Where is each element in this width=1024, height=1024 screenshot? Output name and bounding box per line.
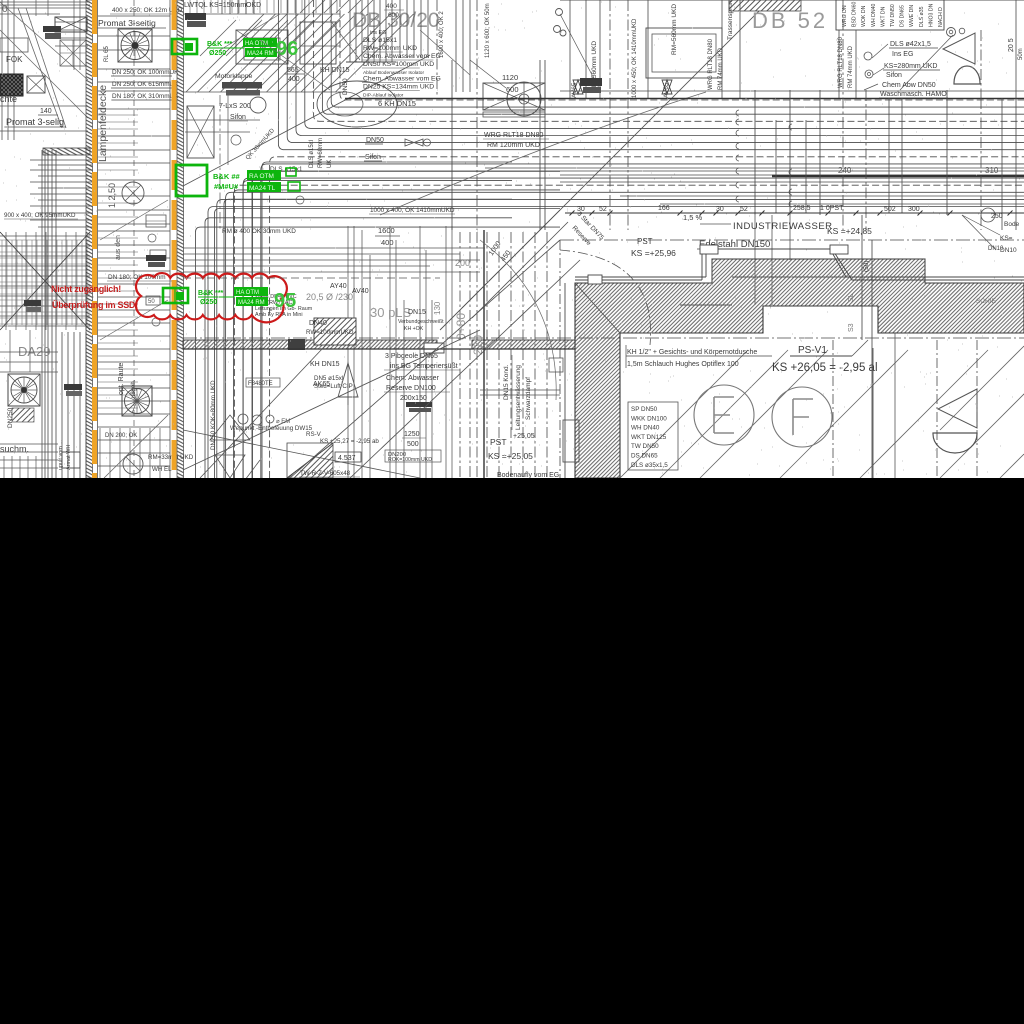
svg-text:Ø250: Ø250 bbox=[200, 299, 217, 306]
svg-text:400: 400 bbox=[381, 238, 394, 247]
svg-text:WRG RLT18 DN80: WRG RLT18 DN80 bbox=[484, 132, 543, 139]
svg-text:ins BG Temperiersüßt: ins BG Temperiersüßt bbox=[390, 363, 458, 370]
svg-text:DIP-Ablauf Isolator: DIP-Ablauf Isolator bbox=[363, 93, 404, 99]
svg-text:130: 130 bbox=[433, 301, 442, 315]
svg-text:565: 565 bbox=[287, 67, 299, 74]
svg-text:900 x 400; OK 95mmUKD: 900 x 400; OK 95mmUKD bbox=[4, 212, 76, 219]
svg-text:502: 502 bbox=[884, 206, 896, 213]
svg-text:aus den: aus den bbox=[115, 235, 122, 260]
svg-text:DN50: DN50 bbox=[342, 78, 349, 95]
svg-text:Waschmasch. HAMO: Waschmasch. HAMO bbox=[880, 91, 947, 98]
svg-text:KH +OK: KH +OK bbox=[404, 326, 424, 332]
svg-text:DLS ø42x1,5: DLS ø42x1,5 bbox=[890, 41, 931, 48]
svg-text:AY40: AY40 bbox=[330, 283, 347, 290]
svg-text:RS-V: RS-V bbox=[306, 431, 322, 438]
svg-text:+25,05: +25,05 bbox=[513, 433, 535, 440]
svg-text:KS =+25,96: KS =+25,96 bbox=[631, 248, 676, 258]
svg-text:600: 600 bbox=[388, 12, 399, 19]
svg-text:1 0PST: 1 0PST bbox=[820, 205, 844, 212]
svg-text:RM ø 400 OK 30mm UKD: RM ø 400 OK 30mm UKD bbox=[222, 228, 296, 235]
svg-text:KS=: KS= bbox=[1000, 235, 1013, 242]
svg-text:Ø250: Ø250 bbox=[209, 50, 226, 57]
svg-text:250: 250 bbox=[991, 213, 1003, 220]
svg-text:96: 96 bbox=[276, 38, 298, 60]
svg-text:FOK: FOK bbox=[6, 55, 23, 64]
svg-text:Chem Abw DN50: Chem Abw DN50 bbox=[882, 82, 936, 89]
svg-text:Bodenaufly vom EG: Bodenaufly vom EG bbox=[497, 472, 559, 479]
svg-text:WH DN40: WH DN40 bbox=[871, 4, 877, 27]
svg-text:Verbundgeschweißt: Verbundgeschweißt bbox=[398, 319, 444, 325]
svg-text:DN 250; OK 615mmUK: DN 250; OK 615mmUK bbox=[112, 81, 179, 88]
svg-text:400: 400 bbox=[288, 76, 300, 83]
svg-text:KS =+25,05: KS =+25,05 bbox=[488, 451, 533, 461]
svg-text:Lampenfeldecke: Lampenfeldecke bbox=[97, 85, 109, 162]
svg-text:DN250 KOK=80mm UKD: DN250 KOK=80mm UKD bbox=[210, 380, 217, 450]
svg-text:Chem. Abwasser vom EG: Chem. Abwasser vom EG bbox=[363, 53, 441, 60]
svg-text:DA29: DA29 bbox=[18, 344, 51, 359]
svg-text:HA OTM: HA OTM bbox=[236, 290, 259, 296]
svg-text:#M#U#: #M#U# bbox=[214, 182, 239, 191]
svg-text:AV40: AV40 bbox=[352, 288, 369, 295]
svg-text:Motorklappe: Motorklappe bbox=[215, 73, 253, 80]
svg-text:1 2,50: 1 2,50 bbox=[107, 183, 117, 208]
svg-text:20,5 Ø /230: 20,5 Ø /230 bbox=[306, 292, 353, 302]
svg-text:RM 74mm UKD: RM 74mm UKD bbox=[718, 47, 724, 90]
svg-text:HNO3 DN: HNO3 DN bbox=[928, 3, 934, 27]
svg-text:WH EL: WH EL bbox=[152, 466, 172, 473]
svg-text:30: 30 bbox=[716, 206, 724, 213]
svg-text:upult vom ...: upult vom ... bbox=[58, 440, 64, 470]
svg-text:DLS ø35: DLS ø35 bbox=[919, 6, 925, 27]
svg-text:DN5 ø15xl: DN5 ø15xl bbox=[314, 375, 343, 382]
svg-text:310: 310 bbox=[985, 166, 999, 175]
svg-text:SL: SL bbox=[848, 293, 855, 302]
svg-text:DS DN65: DS DN65 bbox=[631, 453, 658, 460]
svg-text:1600 x 400; OK 2: 1600 x 400; OK 2 bbox=[439, 11, 445, 58]
svg-text:TW-R-Z-V-605x48: TW-R-Z-V-605x48 bbox=[300, 470, 351, 477]
svg-text:TW DN50: TW DN50 bbox=[631, 443, 659, 450]
svg-text:1,5m Schlauch Hughes Optiflex: 1,5m Schlauch Hughes Optiflex 100 bbox=[627, 361, 739, 368]
svg-text:F8480TE: F8480TE bbox=[248, 381, 273, 387]
svg-text:Ins EG: Ins EG bbox=[892, 51, 913, 58]
svg-text:1600: 1600 bbox=[378, 226, 395, 235]
svg-text:SP DN50: SP DN50 bbox=[631, 406, 658, 413]
svg-text:DS DN65: DS DN65 bbox=[900, 5, 906, 27]
svg-text:MA24 TL: MA24 TL bbox=[249, 185, 276, 192]
svg-text:Trassensprung: Trassensprung bbox=[727, 0, 734, 40]
svg-text:Promat 3-selig: Promat 3-selig bbox=[6, 117, 64, 127]
svg-text:30 pLS: 30 pLS bbox=[370, 305, 412, 320]
svg-text:B&K ##: B&K ## bbox=[213, 172, 241, 181]
svg-text:RM 74mm UKD: RM 74mm UKD bbox=[848, 45, 854, 88]
svg-text:20 5: 20 5 bbox=[1008, 38, 1015, 52]
svg-text:DLS ø15x1: DLS ø15x1 bbox=[363, 37, 397, 44]
svg-text:SCHIE: SCHIE bbox=[976, 298, 997, 305]
svg-text:UK: UK bbox=[327, 160, 333, 168]
svg-text:258,5: 258,5 bbox=[793, 205, 811, 212]
svg-text:MA24 RM: MA24 RM bbox=[238, 300, 265, 306]
svg-text:0+80: 0+80 bbox=[454, 313, 468, 340]
svg-text:RW=60mm: RW=60mm bbox=[318, 138, 324, 168]
svg-text:1000 x 400, OK 1410mmUKD: 1000 x 400, OK 1410mmUKD bbox=[370, 207, 455, 214]
svg-text:1120: 1120 bbox=[502, 73, 518, 82]
svg-text:RW=100mm UKD: RW=100mm UKD bbox=[363, 45, 417, 52]
svg-text:DN15: DN15 bbox=[408, 309, 426, 316]
svg-text:50: 50 bbox=[148, 299, 155, 305]
svg-text:Armat WH: Armat WH bbox=[66, 445, 72, 470]
svg-text:Nicht zugänglich!: Nicht zugänglich! bbox=[51, 284, 121, 294]
svg-text:KS=280mm UKD: KS=280mm UKD bbox=[884, 63, 938, 70]
svg-text:MA24 RM: MA24 RM bbox=[247, 51, 274, 57]
svg-text:WOK DN: WOK DN bbox=[861, 5, 867, 27]
svg-text:7-LxS 200: 7-LxS 200 bbox=[219, 103, 251, 110]
svg-text:DN50 KS=100mm UKD: DN50 KS=100mm UKD bbox=[363, 61, 434, 68]
svg-text:RA OTM: RA OTM bbox=[249, 173, 274, 180]
svg-text:PS-V1: PS-V1 bbox=[798, 345, 827, 356]
svg-text:500: 500 bbox=[407, 441, 419, 448]
svg-text:95: 95 bbox=[274, 290, 296, 312]
svg-text:suchm.: suchm. bbox=[0, 444, 29, 454]
svg-text:HA OTM: HA OTM bbox=[245, 41, 268, 47]
svg-text:B&K ***: B&K *** bbox=[198, 290, 224, 297]
svg-text:Reserve DN100: Reserve DN100 bbox=[386, 385, 436, 392]
svg-text:140: 140 bbox=[40, 108, 52, 115]
svg-text:1000 x 450; OK 1410mmUKD: 1000 x 450; OK 1410mmUKD bbox=[632, 18, 638, 98]
svg-text:1250: 1250 bbox=[404, 431, 420, 438]
svg-text:50m: 50m bbox=[1018, 48, 1024, 60]
svg-text:52: 52 bbox=[599, 206, 607, 213]
svg-text:KH 1/2" + Gesichts- und Körper: KH 1/2" + Gesichts- und Körpernotdusche bbox=[627, 349, 757, 356]
svg-text:DLS ø15xl: DLS ø15xl bbox=[309, 140, 315, 168]
svg-text:RM 120mm UKD: RM 120mm UKD bbox=[487, 142, 540, 149]
svg-text:NACH D: NACH D bbox=[938, 7, 944, 27]
svg-text:ROK=100mm UKD: ROK=100mm UKD bbox=[388, 457, 432, 463]
svg-text:DLS ø35x1,5: DLS ø35x1,5 bbox=[631, 462, 668, 469]
svg-text:Steu=Luft CIP: Steu=Luft CIP bbox=[314, 383, 353, 390]
svg-text:166: 166 bbox=[658, 205, 670, 212]
svg-text:Sifon: Sifon bbox=[365, 154, 381, 161]
svg-text:PST: PST bbox=[637, 237, 653, 246]
svg-text:WWE DN: WWE DN bbox=[909, 5, 915, 27]
svg-text:TW DN50: TW DN50 bbox=[890, 4, 896, 27]
svg-text:ins EG: ins EG bbox=[370, 30, 387, 36]
svg-text:INDUSTRIEWASSER: INDUSTRIEWASSER bbox=[733, 221, 833, 232]
svg-text:Bode: Bode bbox=[1004, 221, 1020, 228]
svg-text:WKT DN125: WKT DN125 bbox=[631, 434, 667, 441]
svg-text:52: 52 bbox=[740, 206, 748, 213]
svg-text:Überprüfung im SSD!: Überprüfung im SSD! bbox=[52, 300, 138, 310]
svg-text:DN 180; OK 310mmUK: DN 180; OK 310mmUK bbox=[112, 93, 179, 100]
svg-text:WRG RLT18 DN80: WRG RLT18 DN80 bbox=[708, 38, 714, 90]
svg-text:WKT DN: WKT DN bbox=[880, 6, 886, 27]
svg-text:KH DN15: KH DN15 bbox=[320, 67, 350, 74]
svg-text:4.537: 4.537 bbox=[338, 455, 356, 462]
svg-text:Leitungsentwässerung: Leitungsentwässerung bbox=[515, 365, 522, 430]
svg-text:DN 250: OK 100mmUK: DN 250: OK 100mmUK bbox=[112, 69, 179, 76]
svg-text:Schwarzdampf: Schwarzdampf bbox=[525, 377, 532, 420]
svg-text:240: 240 bbox=[838, 166, 852, 175]
svg-text:200x150: 200x150 bbox=[400, 395, 427, 402]
svg-text:Chem. Abwasser: Chem. Abwasser bbox=[386, 375, 440, 382]
svg-text:300: 300 bbox=[908, 206, 920, 213]
svg-text:1120 x 600; OK 50m: 1120 x 600; OK 50m bbox=[485, 3, 491, 58]
svg-text:RW=100mmUKD: RW=100mmUKD bbox=[306, 329, 354, 336]
svg-text:DN50: DN50 bbox=[366, 137, 384, 144]
svg-text:1,5 %: 1,5 % bbox=[683, 213, 703, 222]
svg-text:DN10: DN10 bbox=[988, 246, 1004, 252]
svg-text:S3: S3 bbox=[848, 323, 855, 332]
svg-text:RM=33mm UKD: RM=33mm UKD bbox=[148, 454, 194, 461]
svg-text:Sifon: Sifon bbox=[886, 72, 902, 79]
svg-text:LWTQL KS=150mmOKD: LWTQL KS=150mmOKD bbox=[184, 2, 261, 9]
svg-text:chte: chte bbox=[0, 94, 17, 104]
svg-text:RM=560mm UKD: RM=560mm UKD bbox=[671, 4, 678, 55]
svg-text:KS =+24,85: KS =+24,85 bbox=[827, 226, 872, 236]
svg-text:(50): (50) bbox=[863, 260, 870, 272]
svg-text:Promat 3-seitig: Promat 3-seitig bbox=[98, 18, 156, 28]
svg-text:KH DN15: KH DN15 bbox=[310, 361, 340, 368]
svg-text:DN40: DN40 bbox=[309, 320, 327, 327]
svg-text:0: 0 bbox=[2, 4, 8, 15]
svg-text:200: 200 bbox=[455, 258, 470, 268]
svg-text:DB 52: DB 52 bbox=[752, 8, 828, 33]
svg-text:Chem. Abwasser vom EG: Chem. Abwasser vom EG bbox=[363, 76, 441, 83]
svg-text:BSD DN60: BSD DN60 bbox=[852, 2, 858, 27]
svg-text:WKK DN100: WKK DN100 bbox=[631, 415, 667, 422]
svg-text:WH DN40: WH DN40 bbox=[631, 425, 660, 432]
svg-text:PST: PST bbox=[490, 437, 507, 447]
svg-text:KS +26,05 = -2,95 al: KS +26,05 = -2,95 al bbox=[772, 362, 878, 374]
